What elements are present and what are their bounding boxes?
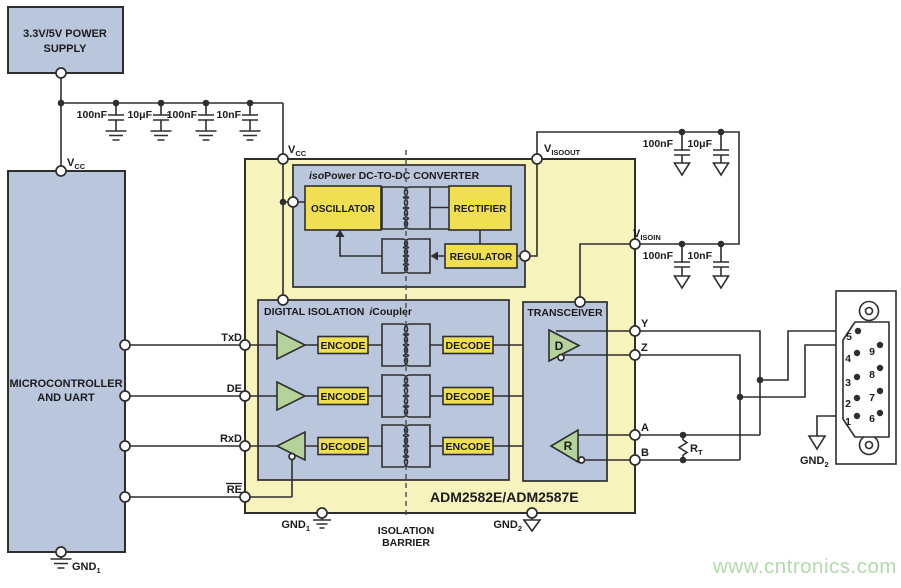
encode-label-row3: ENCODE	[446, 441, 491, 453]
pin-label-7: 7	[869, 392, 875, 404]
driver-z-bubble-icon	[558, 355, 564, 361]
power-supply-label-line1: 3.3V/5V POWER	[23, 28, 107, 40]
visoin-label: VISOIN	[633, 228, 661, 242]
cap-label-3: 100nF	[167, 109, 198, 121]
gnd2-triangle-icon	[714, 276, 729, 288]
gnd2-triangle-icon	[675, 276, 690, 288]
txd-label: TxD	[221, 332, 242, 344]
gnd1-earth-icon	[313, 520, 331, 528]
gnd1-label-ic: GND1	[281, 519, 310, 533]
oscillator-label: OSCILLATOR	[311, 204, 376, 215]
receiver-b-bubble-icon	[579, 457, 585, 463]
decode-label-row1: DECODE	[446, 340, 491, 352]
isolation-barrier-label-line1: ISOLATION	[378, 525, 434, 537]
ic-part-number: ADM2582E/ADM2587E	[430, 489, 579, 505]
gnd2-label-connector: GND2	[800, 455, 829, 469]
pin-label-3: 3	[845, 377, 851, 389]
gnd1-earth-icon	[51, 559, 72, 568]
gnd2-triangle-icon	[524, 520, 540, 531]
regulator-label: REGULATOR	[450, 252, 513, 263]
transceiver-title: TRANSCEIVER	[527, 307, 603, 319]
pin-label-4: 4	[845, 353, 851, 365]
pin-label-1: 1	[845, 416, 851, 428]
visoout-label: VISOOUT	[544, 143, 581, 157]
pin-label-6: 6	[869, 413, 875, 425]
driver-label: D	[555, 339, 564, 353]
pin-label-5: 5	[846, 331, 852, 343]
pin-label-2: 2	[845, 398, 851, 410]
vcc-label-ic: VCC	[288, 144, 307, 158]
power-supply-block: 3.3V/5V POWER SUPPLY	[8, 7, 123, 73]
y-label: Y	[641, 318, 649, 330]
cap-label-visoout-1: 100nF	[643, 138, 674, 150]
microcontroller-label-line1: MICROCONTROLLER	[9, 378, 122, 390]
digital-isolation-title: DIGITAL ISOLATIONiCoupler	[264, 306, 412, 318]
rt-label: RT	[690, 443, 703, 457]
cap-label-visoout-2: 10μF	[687, 138, 712, 150]
dcdc-title: isoPower DC-TO-DC CONVERTER	[309, 170, 480, 182]
db9-screw-bottom-inner-icon	[866, 442, 873, 449]
encode-label-row2: ENCODE	[321, 391, 366, 403]
cap-label-visoin-2: 10nF	[687, 250, 712, 262]
re-enable-bubble-icon	[289, 454, 295, 460]
de-label: DE	[227, 383, 242, 395]
gnd1-label-mcu: GND1	[72, 561, 101, 575]
termination-resistor-icon	[679, 440, 687, 455]
vcc-label-mcu: VCC	[67, 157, 86, 171]
rectifier-label: RECTIFIER	[454, 204, 508, 215]
microcontroller-block: MICROCONTROLLER AND UART	[8, 171, 125, 552]
pin-label-8: 8	[869, 369, 875, 381]
gnd2-triangle-icon	[675, 163, 690, 175]
a-label: A	[641, 422, 649, 434]
db9-screw-top-inner-icon	[866, 308, 873, 315]
gnd2-label-ic: GND2	[493, 519, 522, 533]
gnd2-triangle-icon	[714, 163, 729, 175]
cap-label-visoin-1: 100nF	[643, 250, 674, 262]
receiver-label: R	[564, 439, 573, 453]
power-supply-label-line2: SUPPLY	[43, 43, 87, 55]
power-supply-box	[8, 7, 123, 73]
vcc-cap-grounds	[106, 131, 261, 140]
db9-connector: 5 4 3 2 1 9 8 7 6	[836, 291, 896, 464]
vcc-rail: 100nF 10μF 100nF 10nF	[61, 73, 283, 171]
schematic-page: 3.3V/5V POWER SUPPLY MICROCONTROLLER AND…	[0, 0, 901, 583]
cap-label-2: 10μF	[127, 109, 152, 121]
digital-isolation-section: DIGITAL ISOLATIONiCoupler ENCODE DECODE …	[245, 300, 556, 497]
watermark: www.cntronics.com	[712, 555, 897, 578]
isolated-rs485-circuit-diagram: 3.3V/5V POWER SUPPLY MICROCONTROLLER AND…	[0, 0, 901, 583]
cap-label-1: 100nF	[77, 109, 108, 121]
microcontroller-label-line2: AND UART	[37, 392, 95, 404]
pin-label-9: 9	[869, 346, 875, 358]
encode-label-row1: ENCODE	[321, 340, 366, 352]
gnd2-triangle-icon	[809, 436, 825, 449]
z-label: Z	[641, 342, 648, 354]
cap-label-4: 10nF	[216, 109, 241, 121]
isolation-barrier-label-line2: BARRIER	[382, 537, 430, 549]
decode-label-row3: DECODE	[321, 441, 366, 453]
dcdc-converter-section: isoPower DC-TO-DC CONVERTER OSCILLATOR R…	[283, 159, 537, 300]
rxd-label: RxD	[220, 433, 242, 445]
re-label: RE	[227, 484, 242, 496]
microcontroller-box	[8, 171, 125, 552]
vcc-rail-wires	[61, 73, 283, 171]
decode-label-row2: DECODE	[446, 391, 491, 403]
b-label: B	[641, 447, 649, 459]
